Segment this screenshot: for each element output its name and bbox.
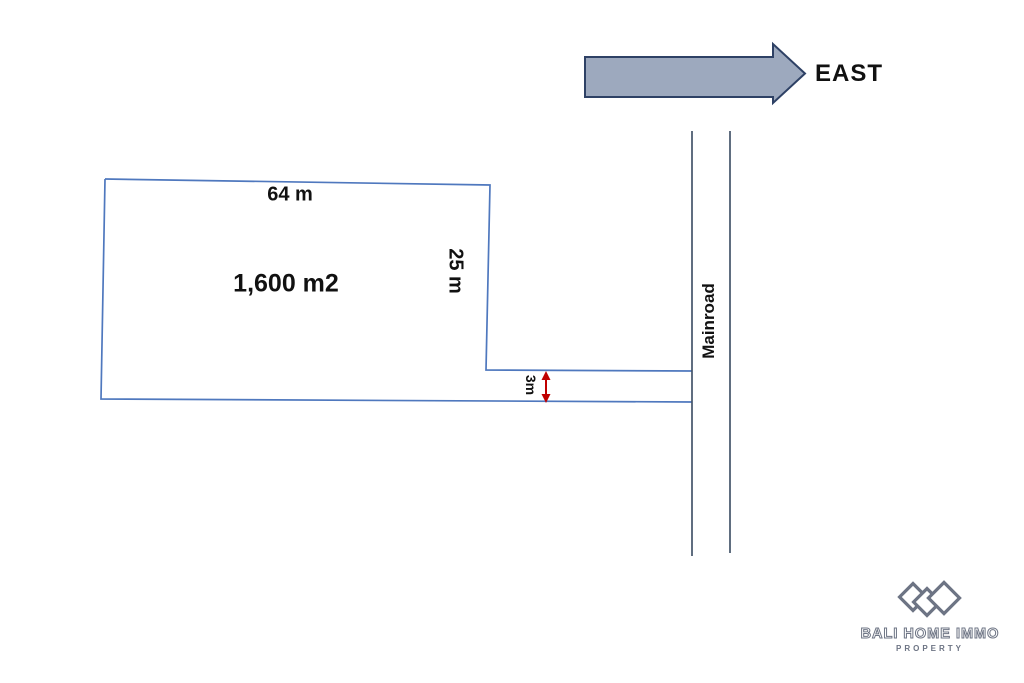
- right-dimension-label: 25 m: [444, 248, 467, 294]
- east-arrow-icon: [585, 44, 805, 103]
- company-logo: BALI HOME IMMO PROPERTY: [855, 578, 1005, 653]
- plot-outline-bottom: [101, 179, 692, 402]
- east-label: EAST: [815, 60, 883, 88]
- plot-outline-top: [105, 179, 692, 371]
- road-label: Mainroad: [699, 283, 719, 359]
- three-diamonds-icon: [895, 578, 965, 622]
- top-dimension-label: 64 m: [267, 184, 313, 207]
- access-width-label: 3m: [523, 375, 539, 395]
- logo-subtitle: PROPERTY: [855, 644, 1005, 653]
- land-plot-diagram: EAST 64 m 1,600 m2 25 m 3m Mainroad BALI…: [0, 0, 1024, 683]
- plot-area-label: 1,600 m2: [233, 270, 339, 299]
- width-dimension-arrow-icon: [542, 371, 551, 403]
- logo-title: BALI HOME IMMO: [855, 626, 1005, 642]
